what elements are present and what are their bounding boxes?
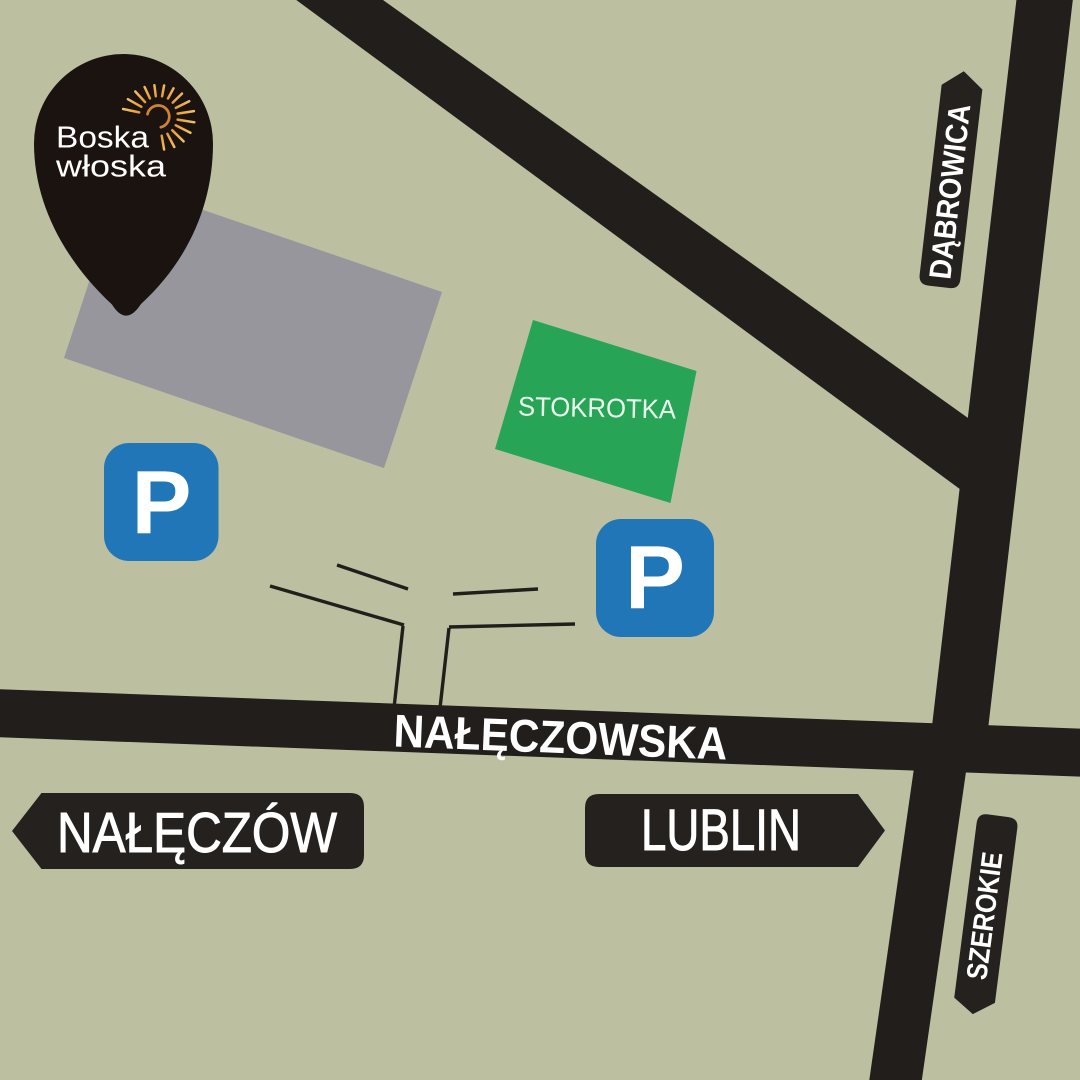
svg-text:włoska: włoska <box>55 149 166 183</box>
svg-text:P: P <box>625 529 685 629</box>
svg-text:NAŁĘCZÓW: NAŁĘCZÓW <box>57 801 337 865</box>
svg-text:LUBLIN: LUBLIN <box>641 798 801 863</box>
svg-text:STOKROTKA: STOKROTKA <box>518 391 677 424</box>
svg-text:P: P <box>131 454 191 554</box>
